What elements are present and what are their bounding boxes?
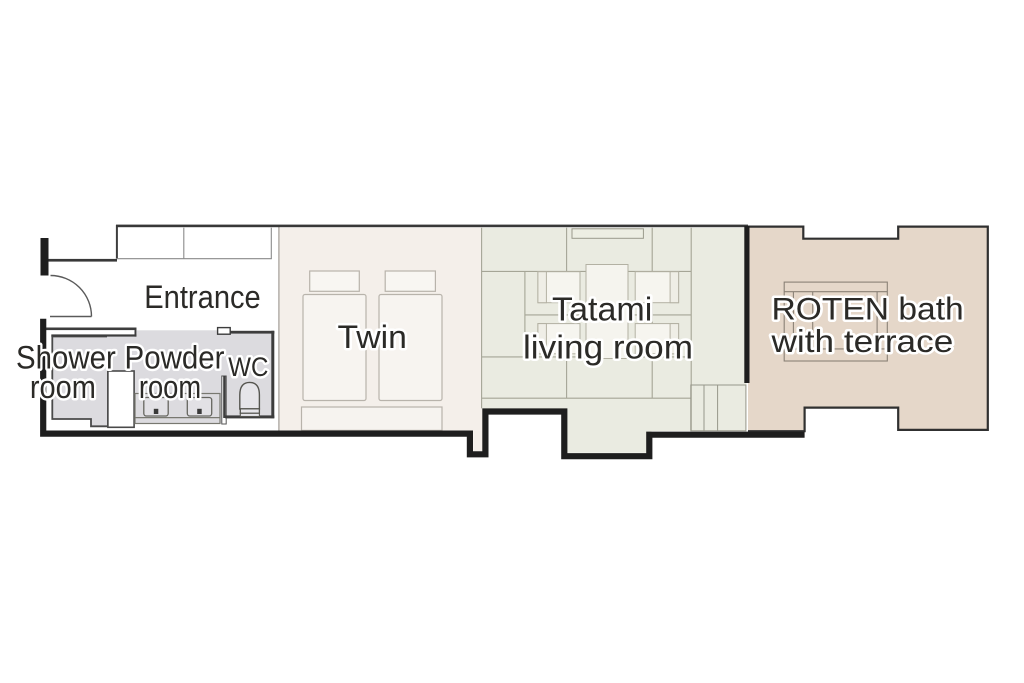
svg-text:Twin: Twin: [338, 319, 407, 355]
svg-text:Tatami: Tatami: [552, 291, 652, 328]
svg-text:room: room: [30, 369, 96, 405]
svg-text:living room: living room: [523, 329, 693, 366]
svg-text:ROTEN bath: ROTEN bath: [772, 290, 964, 326]
svg-text:with terrace: with terrace: [770, 323, 953, 359]
svg-text:room: room: [139, 369, 201, 405]
svg-text:Entrance: Entrance: [144, 279, 261, 315]
svg-text:WC: WC: [228, 352, 268, 382]
